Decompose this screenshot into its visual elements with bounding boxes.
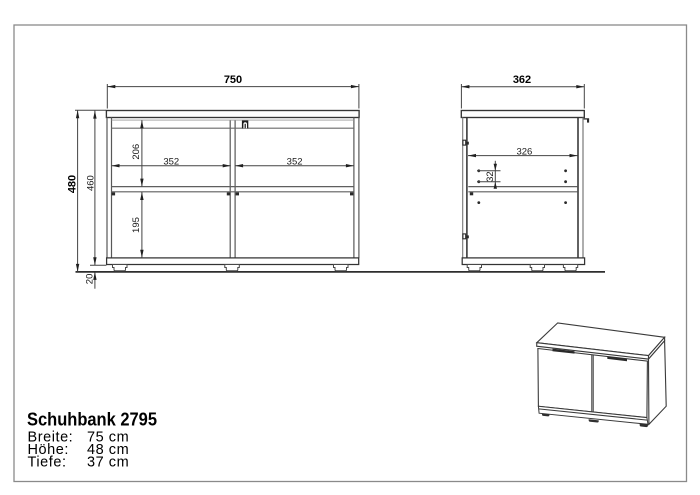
svg-text:480: 480	[66, 175, 78, 193]
svg-text:37 cm: 37 cm	[87, 455, 129, 471]
svg-text:Tiefe:: Tiefe:	[28, 455, 67, 471]
svg-text:195: 195	[131, 217, 142, 233]
svg-text:750: 750	[224, 74, 242, 86]
svg-text:Schuhbank 2795: Schuhbank 2795	[27, 410, 157, 430]
svg-text:352: 352	[287, 156, 303, 167]
svg-text:362: 362	[513, 74, 531, 86]
svg-text:20: 20	[85, 274, 96, 285]
svg-text:352: 352	[163, 156, 179, 167]
svg-text:32: 32	[485, 171, 496, 182]
svg-text:206: 206	[131, 144, 142, 160]
svg-text:460: 460	[85, 175, 96, 191]
svg-text:326: 326	[516, 146, 532, 157]
